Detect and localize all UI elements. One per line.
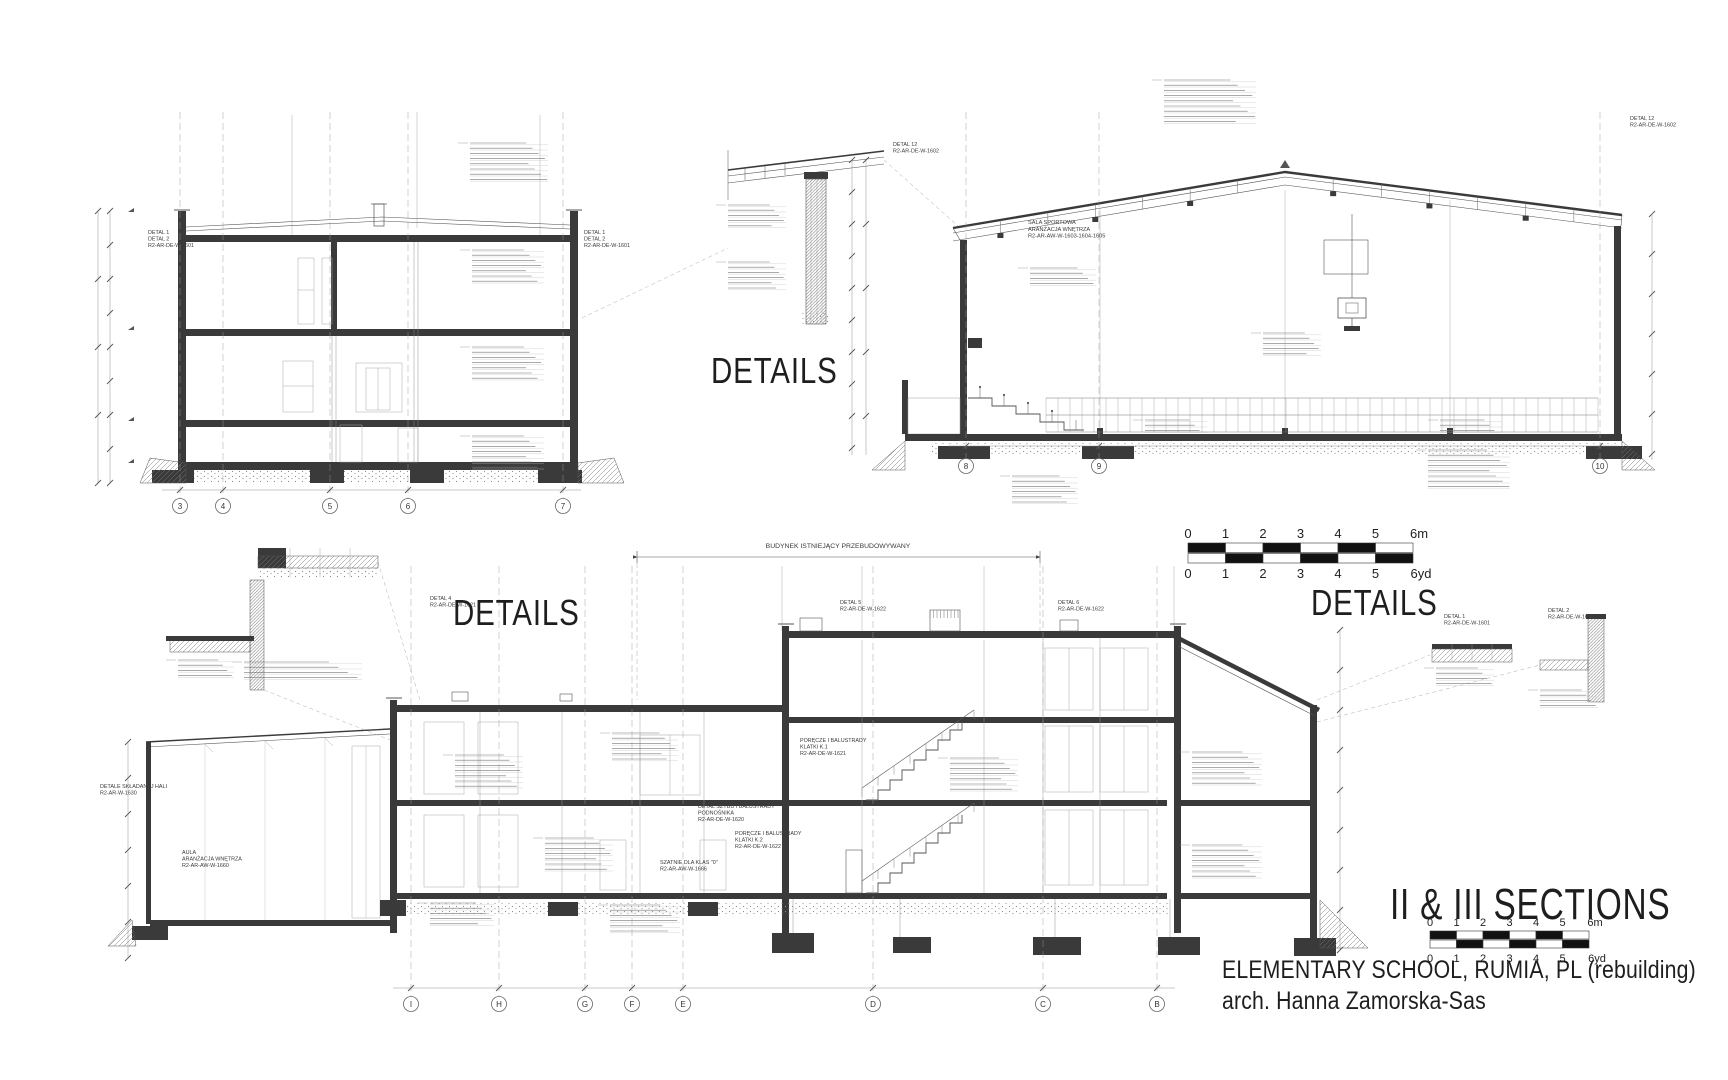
details-label-2: DETAILS xyxy=(453,592,580,634)
left-roof-details xyxy=(166,548,420,740)
scalebar-m-label: 5 xyxy=(1372,526,1379,541)
details-label-1: DETAILS xyxy=(711,350,838,392)
grid-bubble-label: B xyxy=(1154,1000,1159,1009)
scalebar-segment xyxy=(1263,554,1301,564)
scalebar-m-label: 1 xyxy=(1222,526,1229,541)
callout-text: PODNOŚNIKA xyxy=(698,809,734,817)
scalebar-yd-label: 0 xyxy=(1184,566,1191,581)
callout-text: DETAL 2 xyxy=(148,237,169,243)
scalebar-yd-label: 1 xyxy=(1222,566,1229,581)
callout-text: DETAL 5 xyxy=(840,600,861,606)
scalebar-segment xyxy=(1188,543,1226,553)
scalebar-yd-label: 6yd xyxy=(1411,566,1432,581)
callout-text: BUDYNEK ISTNIEJĄCY PRZEBUDOWYWANY xyxy=(766,543,911,550)
right-wall-details xyxy=(1432,614,1606,702)
panel-a-section xyxy=(128,112,728,483)
callout-text: DETALE SKŁADANEJ HALI xyxy=(100,784,167,790)
grid-bubble-label: 9 xyxy=(1097,462,1102,471)
scalebar-m-label: 0 xyxy=(1184,526,1191,541)
scalebar-segment xyxy=(1430,940,1457,948)
purlin xyxy=(1523,216,1529,221)
callout-text: DETAL 6 xyxy=(1058,600,1079,606)
callout-text: DETAL 12 xyxy=(1630,116,1654,122)
grid-bubble-label: I xyxy=(410,1000,412,1009)
architect-line: arch. Hanna Zamorska-Sas xyxy=(1222,987,1486,1016)
callout-text: ARANŻACJA WNĘTRZA xyxy=(1028,226,1090,233)
callout-text: PORĘCZE I BALUSTRADY xyxy=(800,738,867,744)
callout-text: R2-AR-DE-W-1620 xyxy=(698,817,744,823)
eave-detail xyxy=(728,150,958,326)
scalebar-segment xyxy=(1510,940,1537,948)
scalebar-yd-label: 2 xyxy=(1259,566,1266,581)
grid-bubble-label: G xyxy=(582,1000,588,1009)
purlin xyxy=(1330,191,1336,196)
callout-text: R2-AR-DE-W-1601 xyxy=(584,243,630,249)
panel-b-sports-hall xyxy=(728,150,1655,470)
scalebar-segment xyxy=(1226,543,1264,553)
scalebar-segment xyxy=(1376,543,1414,553)
callout-text: DETAL 1 xyxy=(584,230,605,236)
callout-text: SZATNIE DLA KLAS "0" xyxy=(660,860,718,866)
scalebar-segment xyxy=(1483,940,1510,948)
purlin xyxy=(1092,217,1098,222)
scalebar-segment xyxy=(1563,940,1590,948)
scalebar-segment xyxy=(1563,931,1590,939)
callout-text: DETAL 2 xyxy=(584,237,605,243)
callout-text: R2-AR-DE-W-1602 xyxy=(1630,123,1676,129)
callout-text: DETAL 12 xyxy=(893,142,917,148)
scalebar-segment xyxy=(1430,931,1457,939)
callout-text: KLATKI K.2 xyxy=(735,838,763,844)
callout-text: R2-AR-DE-W-1621 xyxy=(800,751,846,757)
grid-bubble-label: 3 xyxy=(178,502,183,511)
scalebar-segment xyxy=(1376,554,1414,564)
callout-text: KLATKI K.1 xyxy=(800,745,828,751)
callout-text: R2-AR-AW-W-1660 xyxy=(182,863,229,869)
scalebar-segment xyxy=(1338,554,1376,564)
callout-text: R2-AR-DE-W-1601 xyxy=(1444,621,1490,627)
blueprint-canvas: 345678910IHGFEDCB0123456m0123456yd012345… xyxy=(0,0,1728,1080)
purlin xyxy=(1187,201,1193,206)
project-title: ELEMENTARY SCHOOL, RUMIA, PL (rebuilding… xyxy=(1222,956,1696,985)
callout-text: SALA SPORTOWA xyxy=(1028,220,1076,226)
grid-bubble-label: C xyxy=(1040,1000,1046,1009)
purlin xyxy=(1426,203,1432,208)
callout-text: DETAL 4 xyxy=(430,596,451,602)
callout-text: R2-AR-DE-W-1622 xyxy=(735,844,781,850)
callout-text: R2-AR-DE-W-1601 xyxy=(148,243,194,249)
scalebar-segment xyxy=(1226,554,1264,564)
scalebar-yd-label: 3 xyxy=(1297,566,1304,581)
scalebar-yd-label: 4 xyxy=(1334,566,1341,581)
grid-bubble-label: 4 xyxy=(221,502,226,511)
scalebar-segment xyxy=(1536,931,1563,939)
callout-text: R2-AR-DE-W-1602 xyxy=(893,149,939,155)
callout-text: AULA xyxy=(182,850,196,856)
callout-text: DETAL 1 xyxy=(148,230,169,236)
callout-text: R2-AR-AW-W-1603-1604-1605 xyxy=(1028,234,1105,240)
grid-bubble-label: D xyxy=(870,1000,876,1009)
scalebar-m-label: 4 xyxy=(1334,526,1341,541)
callout-text: R2-AR-DE-W-1622 xyxy=(840,607,886,613)
callout-text: DETAL SZYBU I BALUSTRADY xyxy=(698,804,775,810)
grid-bubble-label: 10 xyxy=(1596,462,1605,471)
callout-text: PORĘCZE I BALUSTRADY xyxy=(735,831,802,837)
purlin xyxy=(997,233,1003,238)
callout-text: ARANŻACJA WNĘTRZA xyxy=(182,856,242,863)
aula-annex xyxy=(108,729,390,946)
scalebar-segment xyxy=(1457,940,1484,948)
details-label-3: DETAILS xyxy=(1311,582,1438,624)
scalebar-m-label: 3 xyxy=(1297,526,1304,541)
grid-bubble-label: 8 xyxy=(964,462,969,471)
grid-bubble-label: F xyxy=(630,1000,635,1009)
callout-text: R2-AR-DE-W-1622 xyxy=(1058,607,1104,613)
scalebar-segment xyxy=(1188,554,1226,564)
scalebar-m-label: 2 xyxy=(1259,526,1266,541)
callout-text: DETAL 1 xyxy=(1444,614,1465,620)
grid-bubble-label: 7 xyxy=(561,502,566,511)
scalebar-segment xyxy=(1457,931,1484,939)
scalebar-segment xyxy=(1483,931,1510,939)
scalebar-yd-label: 5 xyxy=(1372,566,1379,581)
sections-title: II & III SECTIONS xyxy=(1390,880,1670,930)
scalebar-segment xyxy=(1301,543,1339,553)
grid-bubble-label: E xyxy=(680,1000,685,1009)
callout-text: R2-AR-DE-W-1601 xyxy=(1548,615,1594,621)
scalebar-segment xyxy=(1301,554,1339,564)
scalebar-m-label: 6m xyxy=(1410,526,1428,541)
scalebar-segment xyxy=(1263,543,1301,553)
scalebar-segment xyxy=(1536,940,1563,948)
grid-bubble-label: H xyxy=(496,1000,502,1009)
scalebar-segment xyxy=(1510,931,1537,939)
scalebar-segment xyxy=(1338,543,1376,553)
callout-text: R2-AR-W-1630 xyxy=(100,791,137,797)
callout-text: R2-AR-AW-W-1666 xyxy=(660,867,707,873)
grid-bubble-label: 5 xyxy=(328,502,333,511)
stairwell xyxy=(846,640,984,893)
callout-text: DETAL 2 xyxy=(1548,608,1569,614)
grid-bubble-label: 6 xyxy=(406,502,411,511)
